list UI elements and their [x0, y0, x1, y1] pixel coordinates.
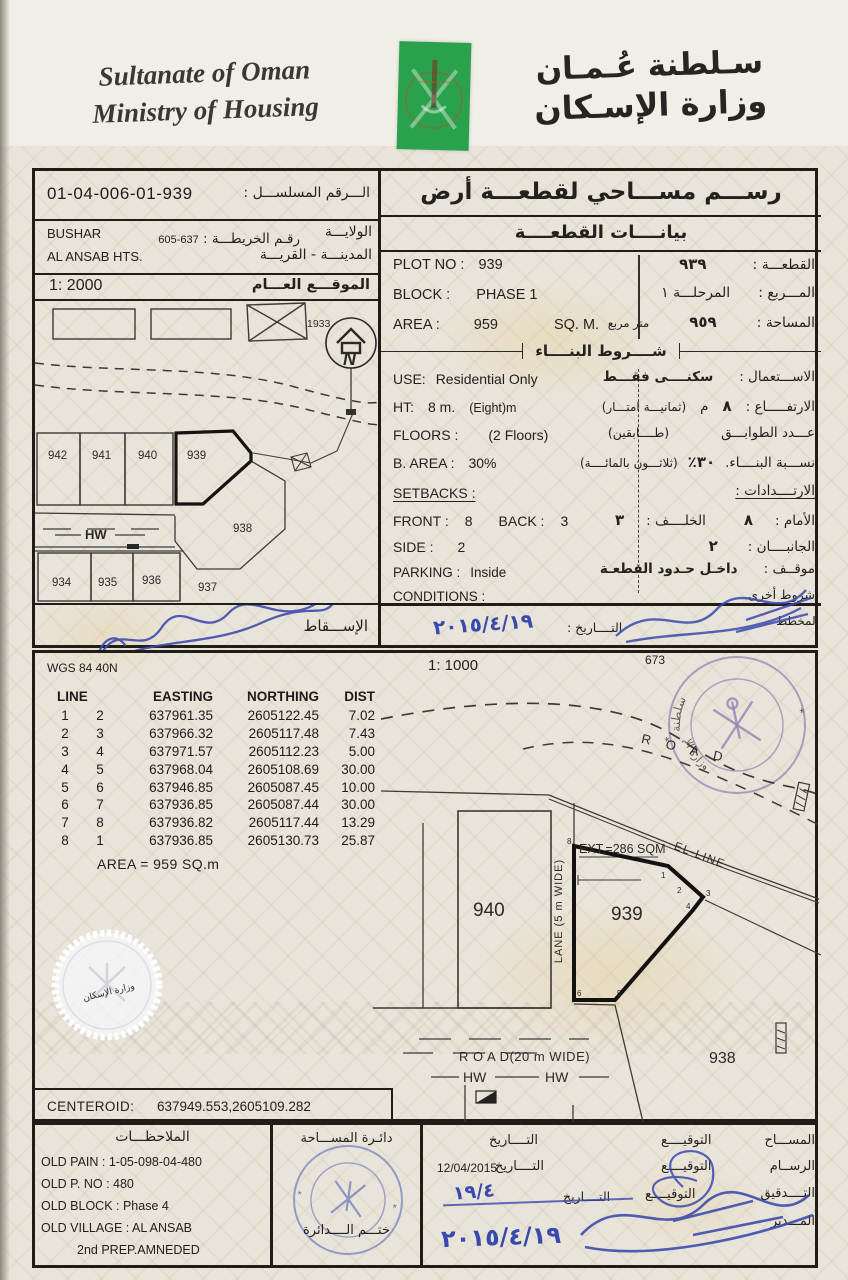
- setbacks-label-ar: الارتــــدادات :: [735, 483, 815, 499]
- svg-text:1: 1: [661, 871, 666, 880]
- barea-label: B. AREA :: [393, 455, 454, 471]
- location-map-header: 1: 2000 الموقـــع العـــام: [35, 273, 378, 301]
- plot-938-label: 938: [709, 1050, 736, 1067]
- lane-label: LANE (5 m WIDE): [553, 859, 565, 963]
- coords-row: 67637936.852605087.4430.00: [49, 796, 379, 814]
- location-map: N 1933 942 941 940 939 938 HW 934 935 93…: [35, 301, 378, 603]
- side-value-ar: ٢: [709, 537, 718, 555]
- dept-line2: ختـــم الــــدائرة: [273, 1223, 420, 1238]
- plot-label-940: 940: [138, 450, 157, 462]
- parking-value-ar: داخـل حـدود القطعـة: [600, 561, 738, 577]
- north-label: N: [343, 349, 357, 369]
- col-line: LINE: [49, 689, 119, 707]
- coords-row: 56637946.852605087.4510.00: [49, 778, 379, 796]
- use-row-ar: الاســـتعمال : سكنــــى فقـــط: [603, 369, 815, 385]
- title-en-line1: Sultanate of Oman: [54, 53, 355, 94]
- parking-label: PARKING :: [393, 565, 460, 580]
- map-ref-1933: 1933: [307, 318, 331, 330]
- svg-text:6: 6: [577, 989, 582, 998]
- date-label-2: التــــاريخ: [495, 1159, 544, 1174]
- coords-row: 12637961.352605122.457.02: [49, 707, 379, 725]
- svg-text:*: *: [296, 1189, 303, 1202]
- area-value: 959: [474, 317, 498, 333]
- back-label-ar: الخلــــف :: [646, 513, 706, 529]
- serial-number: 01-04-006-01-939: [47, 184, 193, 204]
- plot-label-938: 938: [233, 523, 252, 535]
- front-value: 8: [465, 513, 473, 529]
- building-conditions-divider: شــــروط البنــــاء: [381, 343, 821, 359]
- area-unit-ar: متر مربع: [608, 316, 649, 330]
- barea-note-ar: (ثلاثـــون بالمائــــة): [580, 456, 678, 470]
- area-row: AREA : 959 SQ. M.: [393, 317, 599, 333]
- plot-no-value-ar: ٩٣٩: [679, 255, 706, 273]
- title-en-line2: Ministry of Housing: [55, 90, 356, 131]
- hand-date-manager: ٢٠١٥/٤/١٩: [441, 1221, 562, 1253]
- area-label-ar: المساحة :: [757, 315, 815, 331]
- height-unit-ar: م: [700, 399, 708, 415]
- plot-no-value: 939: [478, 257, 502, 273]
- floors-label-ar: عـــدد الطوابـــق: [721, 425, 815, 441]
- plot-939-outline-locmap: [176, 431, 251, 504]
- coords-row: 23637966.322605117.487.43: [49, 725, 379, 743]
- hw-label-locmap: HW: [85, 527, 107, 542]
- coords-table-body: 12637961.352605122.457.0223637966.322605…: [49, 707, 379, 849]
- centeroid-box: CENTEROID: 637949.553,2605109.282: [35, 1088, 393, 1122]
- col-easting: EASTING: [119, 689, 217, 707]
- coords-row: 45637968.042605108.6930.00: [49, 760, 379, 778]
- wilaya-value: BUSHAR: [47, 226, 101, 241]
- road20-label: R O A D(20 m WIDE): [459, 1049, 590, 1064]
- parking-row: PARKING : Inside: [393, 565, 506, 580]
- floors-value: (2 Floors): [488, 427, 548, 443]
- front-back-row-ar: الأمام : ٨ الخلــــف : ٣: [615, 511, 815, 529]
- dept-line1: دائـرة المســـاحة: [273, 1125, 420, 1146]
- barea-value: 30%: [468, 455, 496, 471]
- conditions-area: USE: Residential Only الاســـتعمال : سكن…: [381, 361, 821, 603]
- coords-row: 34637971.572605112.235.00: [49, 743, 379, 761]
- svg-text:*: *: [391, 1202, 398, 1215]
- back-value: 3: [560, 513, 568, 529]
- centeroid-value: 637949.553,2605109.282: [157, 1099, 311, 1114]
- plot-label-941: 941: [92, 450, 111, 462]
- footer-strip: الملاحظـــات OLD PAIN : 1-05-098-04-480 …: [32, 1122, 818, 1268]
- green-stamp: [397, 41, 472, 151]
- signature-projection: [90, 605, 340, 650]
- role-draftsman: الرســام: [770, 1159, 815, 1174]
- plot-no-label-ar: القطعـــة :: [753, 257, 815, 273]
- handwritten-date: ٢٠١٥/٤/١٩: [432, 609, 533, 640]
- front-label-ar: الأمام :: [775, 513, 815, 529]
- ministry-title-arabic: سـلطنة عُـمـان وزارة الإسـكان: [519, 43, 781, 128]
- parking-row-ar: موقــف : داخـل حـدود القطعـة: [600, 561, 815, 577]
- barea-row: B. AREA : 30%: [393, 455, 497, 471]
- scan-edge-shadow: [0, 0, 10, 1280]
- block-label: BLOCK :: [393, 287, 450, 303]
- serial-label: الـــرقم المسلســـل :: [243, 185, 370, 201]
- location-map-title: الموقـــع العـــام: [252, 277, 370, 293]
- note-line: OLD BLOCK : Phase 4: [41, 1199, 169, 1213]
- plot-label-942: 942: [48, 450, 67, 462]
- department-stamp-box: دائـرة المســـاحة ختـــم الــــدائرة * *: [273, 1125, 423, 1265]
- floors-row: FLOORS : (2 Floors): [393, 427, 548, 443]
- scanned-survey-document: Sultanate of Oman Ministry of Housing سـ…: [0, 0, 848, 1280]
- height-label: HT:: [393, 399, 414, 415]
- city-label: المدينـــة - القريـــة: [260, 247, 372, 263]
- area-value-ar: ٩٥٩: [689, 313, 716, 331]
- doc-subtitle-box: بيانــــات القطعــــة: [381, 217, 821, 252]
- note-line: OLD P. NO : 480: [41, 1177, 134, 1191]
- projection-strip: الإســـقاط: [35, 603, 378, 648]
- hw-label-2: HW: [545, 1069, 569, 1085]
- side-label-ar: الجانبــــان :: [748, 539, 815, 555]
- el-line-label: EL-LINE: [672, 840, 727, 871]
- wilaya-label: الولايـــة: [325, 224, 372, 240]
- use-value: Residential Only: [436, 371, 538, 387]
- svg-text:4: 4: [686, 902, 691, 911]
- plot-label-939: 939: [187, 450, 206, 462]
- conditions-label: CONDITIONS :: [393, 589, 485, 604]
- notes-title: الملاحظـــات: [35, 1125, 270, 1145]
- height-note: (Eight)m: [469, 401, 516, 415]
- height-value-ar: ٨: [723, 397, 732, 415]
- hw-label-1: HW: [463, 1069, 487, 1085]
- setbacks-label: SETBACKS :: [393, 485, 475, 501]
- embossed-seal: وزارة الإسكان: [47, 925, 167, 1045]
- back-value-ar: ٣: [615, 511, 624, 529]
- approval-box: المســـاح الرســام التــــدقيق المـــدير…: [423, 1125, 821, 1265]
- front-value-ar: ٨: [744, 511, 753, 529]
- title-ar-line1: سـلطنة عُـمـان: [519, 43, 780, 88]
- department-stamp: * *: [283, 1139, 413, 1261]
- use-value-ar: سكنــــى فقـــط: [603, 369, 713, 385]
- plot-info-rows: PLOT NO : 939 القطعـــة : ٩٣٩ BLOCK : PH…: [381, 249, 821, 343]
- parking-label-ar: موقــف :: [764, 561, 815, 577]
- col-dist: DIST: [323, 689, 379, 707]
- barea-row-ar: نســـبة البنــــاء. ٣٠٪ (ثلاثـــون بالما…: [580, 453, 815, 471]
- signature-planner: [596, 580, 816, 648]
- ext-area-label: EXT.=286 SQM: [579, 842, 666, 856]
- map-number-label: رقـم الخريطـــة :: [203, 231, 300, 247]
- doc-subtitle: بيانــــات القطعــــة: [381, 217, 821, 243]
- side-value: 2: [457, 539, 465, 555]
- region-box: BUSHAR AL ANSAB HTS. رقـم الخريطـــة : 6…: [35, 219, 378, 275]
- doc-title-box: رســـم مســـاحي لقطعـــة أرض: [381, 171, 821, 217]
- green-stamp-emblem: [397, 41, 472, 151]
- note-line: 2nd PREP.AMNEDED: [77, 1243, 200, 1257]
- area-total: AREA = 959 SQ.m: [97, 856, 379, 872]
- role-surveyor: المســـاح: [765, 1133, 815, 1148]
- height-value: 8 m.: [428, 399, 455, 415]
- use-label: USE:: [393, 371, 426, 387]
- floors-value-ar: (طــــابقين): [608, 425, 669, 440]
- floors-label: FLOORS :: [393, 427, 458, 443]
- coords-row: 81637936.852605130.7325.87: [49, 832, 379, 850]
- barea-label-ar: نســـبة البنــــاء.: [725, 455, 815, 471]
- title-ar-line2: وزارة الإسـكان: [520, 81, 781, 128]
- area-row-ar: المساحة : ٩٥٩ متر مربع: [608, 313, 815, 331]
- plot-label-934: 934: [52, 577, 72, 589]
- note-line: OLD VILLAGE : AL ANSAB: [41, 1221, 192, 1235]
- plot-no-row: PLOT NO : 939: [393, 257, 503, 273]
- col-northing: NORTHING: [217, 689, 323, 707]
- block-label-ar: المـــربع :: [758, 285, 815, 301]
- block-value-ar: المرحلـــة ١: [661, 285, 730, 301]
- side-row: SIDE : 2: [393, 539, 465, 555]
- location-map-scale: 1: 2000: [49, 277, 102, 295]
- use-row: USE: Residential Only: [393, 371, 538, 387]
- area-label: AREA :: [393, 317, 440, 333]
- notes-box: الملاحظـــات OLD PAIN : 1-05-098-04-480 …: [35, 1125, 273, 1265]
- datum-label: WGS 84 40N: [47, 661, 118, 675]
- barea-value-ar: ٣٠٪: [688, 453, 715, 471]
- drawing-lines: [373, 703, 821, 1122]
- plot-940-label: 940: [473, 900, 505, 921]
- plot-no-label: PLOT NO :: [393, 257, 464, 273]
- building-conditions-title: شــــروط البنــــاء: [522, 343, 680, 359]
- date-value-2: 12/04/2015: [437, 1161, 497, 1175]
- svg-text:3: 3: [706, 889, 711, 898]
- serial-box: 01-04-006-01-939 الـــرقم المسلســـل :: [35, 171, 378, 221]
- coords-header-row: LINE EASTING NORTHING DIST: [49, 689, 379, 707]
- svg-text:2: 2: [677, 886, 682, 895]
- planner-signature-row: ٢٠١٥/٤/١٩ التــــاريخ : المخطط: [381, 603, 821, 645]
- height-note-ar: (ثمانيـــة امتـــار): [602, 400, 686, 414]
- plot-label-935: 935: [98, 577, 117, 589]
- floors-row-ar: عـــدد الطوابـــق (طــــابقين): [608, 425, 815, 441]
- side-label: SIDE :: [393, 539, 433, 555]
- doc-title: رســـم مســـاحي لقطعـــة أرض: [381, 171, 821, 205]
- coords-row: 78637936.822605117.4413.29: [49, 814, 379, 832]
- height-label-ar: الارتفـــــاع :: [746, 399, 815, 415]
- parking-value: Inside: [470, 565, 506, 580]
- height-row-ar: الارتفـــــاع : ٨ م (ثمانيـــة امتـــار): [602, 397, 815, 415]
- plot-939-label: 939: [611, 904, 643, 925]
- culvert-symbol: [476, 1091, 496, 1103]
- hand-date-audit: ١٩/٤: [452, 1179, 495, 1205]
- plot-label-936: 936: [142, 575, 161, 587]
- back-label: BACK :: [499, 513, 545, 529]
- front-back-row: FRONT : 8 BACK : 3: [393, 513, 568, 529]
- area-unit: SQ. M.: [554, 317, 599, 333]
- height-row: HT: 8 m. (Eight)m: [393, 399, 516, 415]
- signature-manager: [573, 1177, 819, 1263]
- use-label-ar: الاســـتعمال :: [739, 369, 815, 385]
- plot-data-column: رســـم مســـاحي لقطعـــة أرض بيانــــات …: [378, 171, 821, 645]
- centeroid-label: CENTEROID:: [47, 1099, 134, 1114]
- road-label: R O A D: [640, 731, 730, 766]
- svg-text:5: 5: [617, 989, 622, 998]
- svg-text:8: 8: [567, 837, 572, 846]
- city-value: AL ANSAB HTS.: [47, 249, 143, 264]
- survey-frame: WGS 84 40N 1: 1000 673 سلطنة عمان وزارة …: [32, 650, 818, 1122]
- coordinates-table: LINE EASTING NORTHING DIST 12637961.3526…: [49, 689, 379, 872]
- block-value: PHASE 1: [476, 287, 537, 303]
- block-row: BLOCK : PHASE 1: [393, 287, 537, 303]
- map-number: رقـم الخريطـــة : 637-605: [158, 231, 300, 247]
- side-row-ar: الجانبــــان : ٢: [709, 537, 815, 555]
- front-label: FRONT :: [393, 513, 449, 529]
- ministry-title-english: Sultanate of Oman Ministry of Housing: [54, 53, 356, 131]
- note-line: OLD PAIN : 1-05-098-04-480: [41, 1155, 202, 1169]
- block-row-ar: المـــربع : المرحلـــة ١: [661, 285, 815, 301]
- header: Sultanate of Oman Ministry of Housing سـ…: [0, 40, 848, 165]
- top-frame: 01-04-006-01-939 الـــرقم المسلســـل : B…: [32, 168, 818, 648]
- plot-no-row-ar: القطعـــة : ٩٣٩: [679, 255, 815, 273]
- map-number-value: 637-605: [158, 234, 198, 246]
- plot-drawing: R O A D EL-LINE EXT.=286 SQM 939 940 938…: [373, 653, 821, 1122]
- plot-label-937: 937: [198, 582, 217, 594]
- date-label-1: التــــاريخ: [489, 1133, 538, 1148]
